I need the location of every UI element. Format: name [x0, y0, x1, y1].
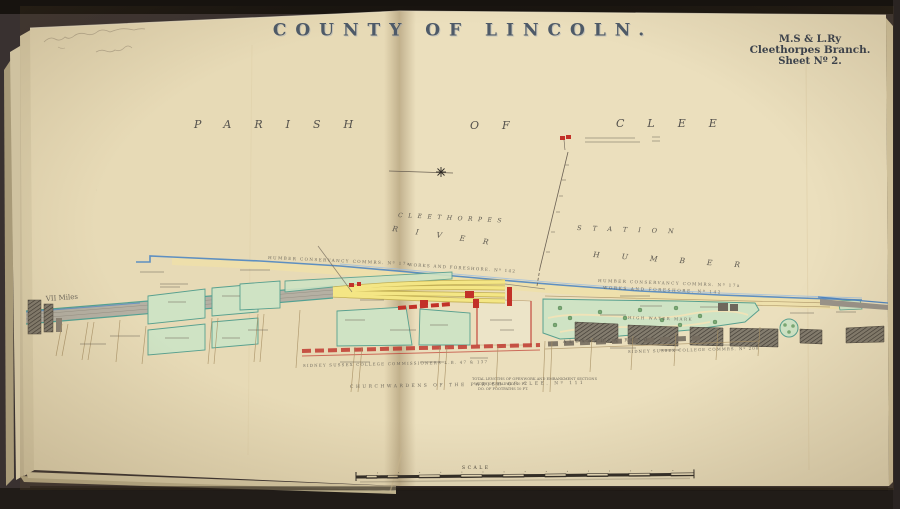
scale-label: SCALE [462, 465, 491, 471]
works-note-line1: TOTAL LENGTHS OF OPENWORK AND EMBANKMENT… [472, 377, 598, 381]
compass-star [436, 167, 446, 177]
circular-garden [780, 319, 798, 337]
sheet-number: Sheet Nº 2. [778, 56, 841, 67]
right-page [400, 11, 889, 486]
book-pages [4, 11, 893, 494]
branch-name: Cleethorpes Branch. [750, 44, 871, 56]
works-note-line3: DO. OF FOOTPATHS 10 FT. [478, 387, 528, 391]
map-title: COUNTY OF LINCOLN. [273, 21, 653, 41]
parish-label-word3: CLEE [616, 117, 740, 130]
left-page [30, 11, 400, 486]
parish-label-word1: PARISH [193, 118, 376, 131]
parish-label-word2: OF [470, 119, 533, 132]
works-note-line2: WIDTH OF ROADWAY 40 FT. [474, 382, 527, 386]
scanned-map-plate: COUNTY OF LINCOLN. COUNTY OF LINCOLN. M.… [0, 0, 900, 509]
map-plate-svg: COUNTY OF LINCOLN. COUNTY OF LINCOLN. M.… [0, 0, 900, 509]
